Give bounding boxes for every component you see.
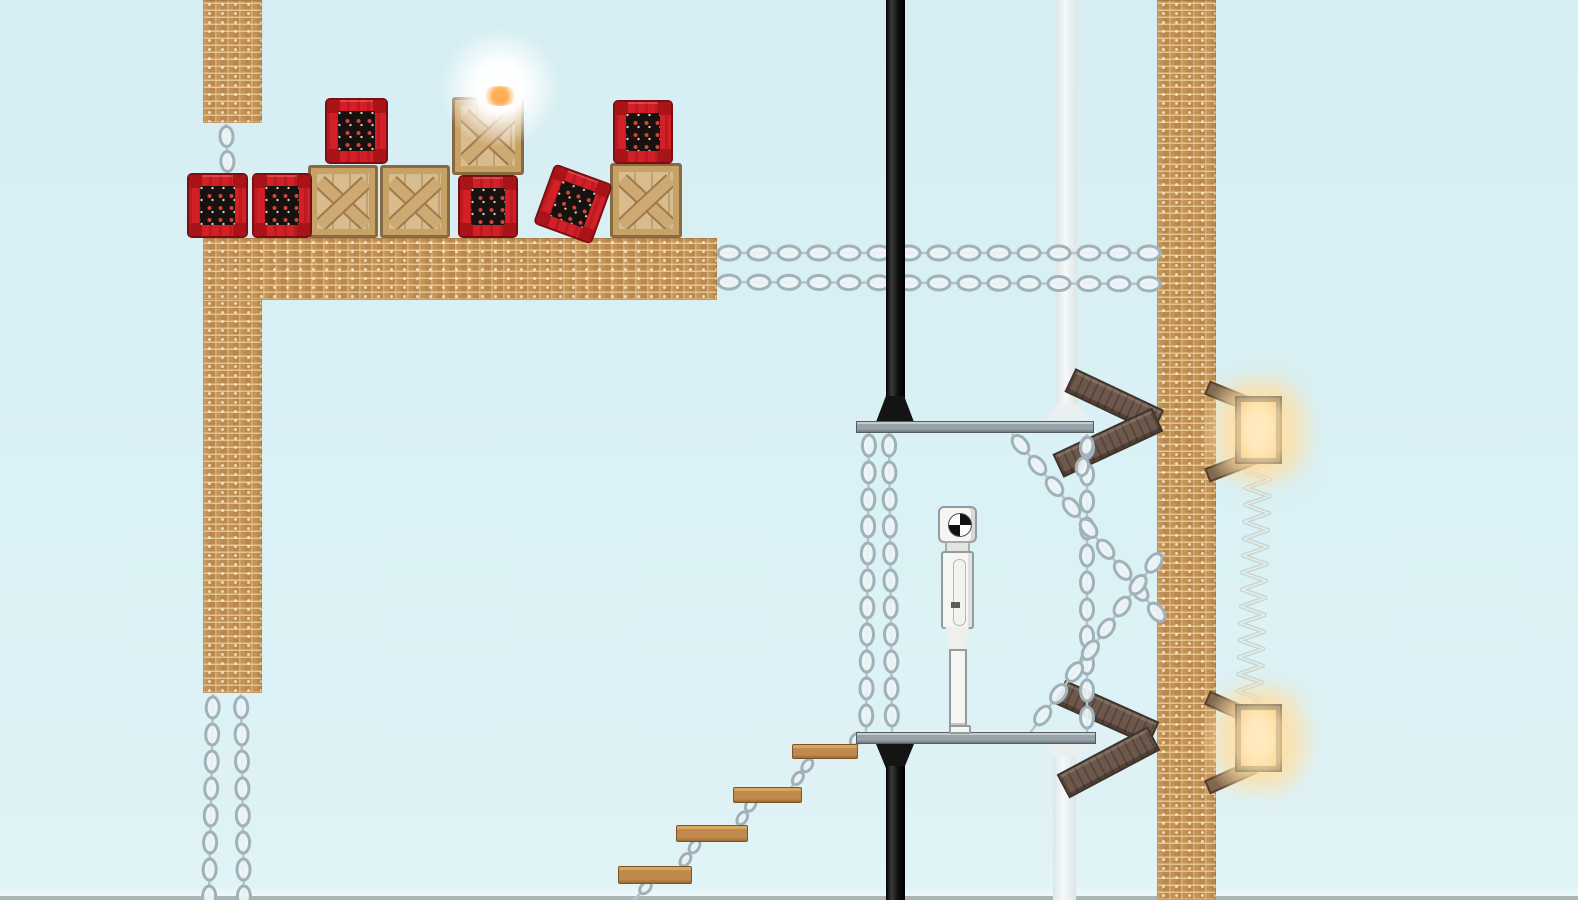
black-pole-bottom[interactable]	[886, 766, 905, 900]
wooden-crate[interactable]	[308, 165, 378, 238]
dynamite-crate[interactable]	[187, 173, 248, 238]
brick-platform-left[interactable]	[203, 238, 717, 300]
stair-plank[interactable]	[618, 866, 692, 884]
dummy-foot	[949, 725, 971, 734]
crate-face	[317, 174, 369, 229]
light-glow-core	[482, 86, 518, 106]
wooden-crate[interactable]	[380, 165, 450, 238]
game-scene	[0, 0, 1578, 900]
upper-platform[interactable]	[856, 421, 1094, 433]
dummy-arm	[953, 559, 966, 626]
stair-plank[interactable]	[792, 744, 858, 759]
lamp-glow	[1198, 678, 1322, 802]
brick-column-top-left[interactable]	[203, 0, 262, 123]
dummy-hips	[945, 626, 969, 650]
lamp-glow	[1198, 370, 1322, 494]
dummy-leg	[949, 649, 967, 727]
dynamite-crate[interactable]	[458, 175, 518, 238]
wooden-crate[interactable]	[610, 163, 682, 238]
dummy-hand	[951, 602, 960, 608]
black-pole-top[interactable]	[886, 0, 905, 398]
brick-column-left[interactable]	[203, 299, 262, 693]
test-dummy[interactable]	[936, 504, 980, 735]
dynamite-crate[interactable]	[252, 173, 312, 238]
dynamite-crate[interactable]	[613, 100, 673, 164]
stair-plank[interactable]	[676, 825, 748, 842]
dynamite-crate[interactable]	[325, 98, 388, 164]
dummy-crash-symbol	[948, 513, 972, 537]
stair-plank[interactable]	[733, 787, 802, 803]
